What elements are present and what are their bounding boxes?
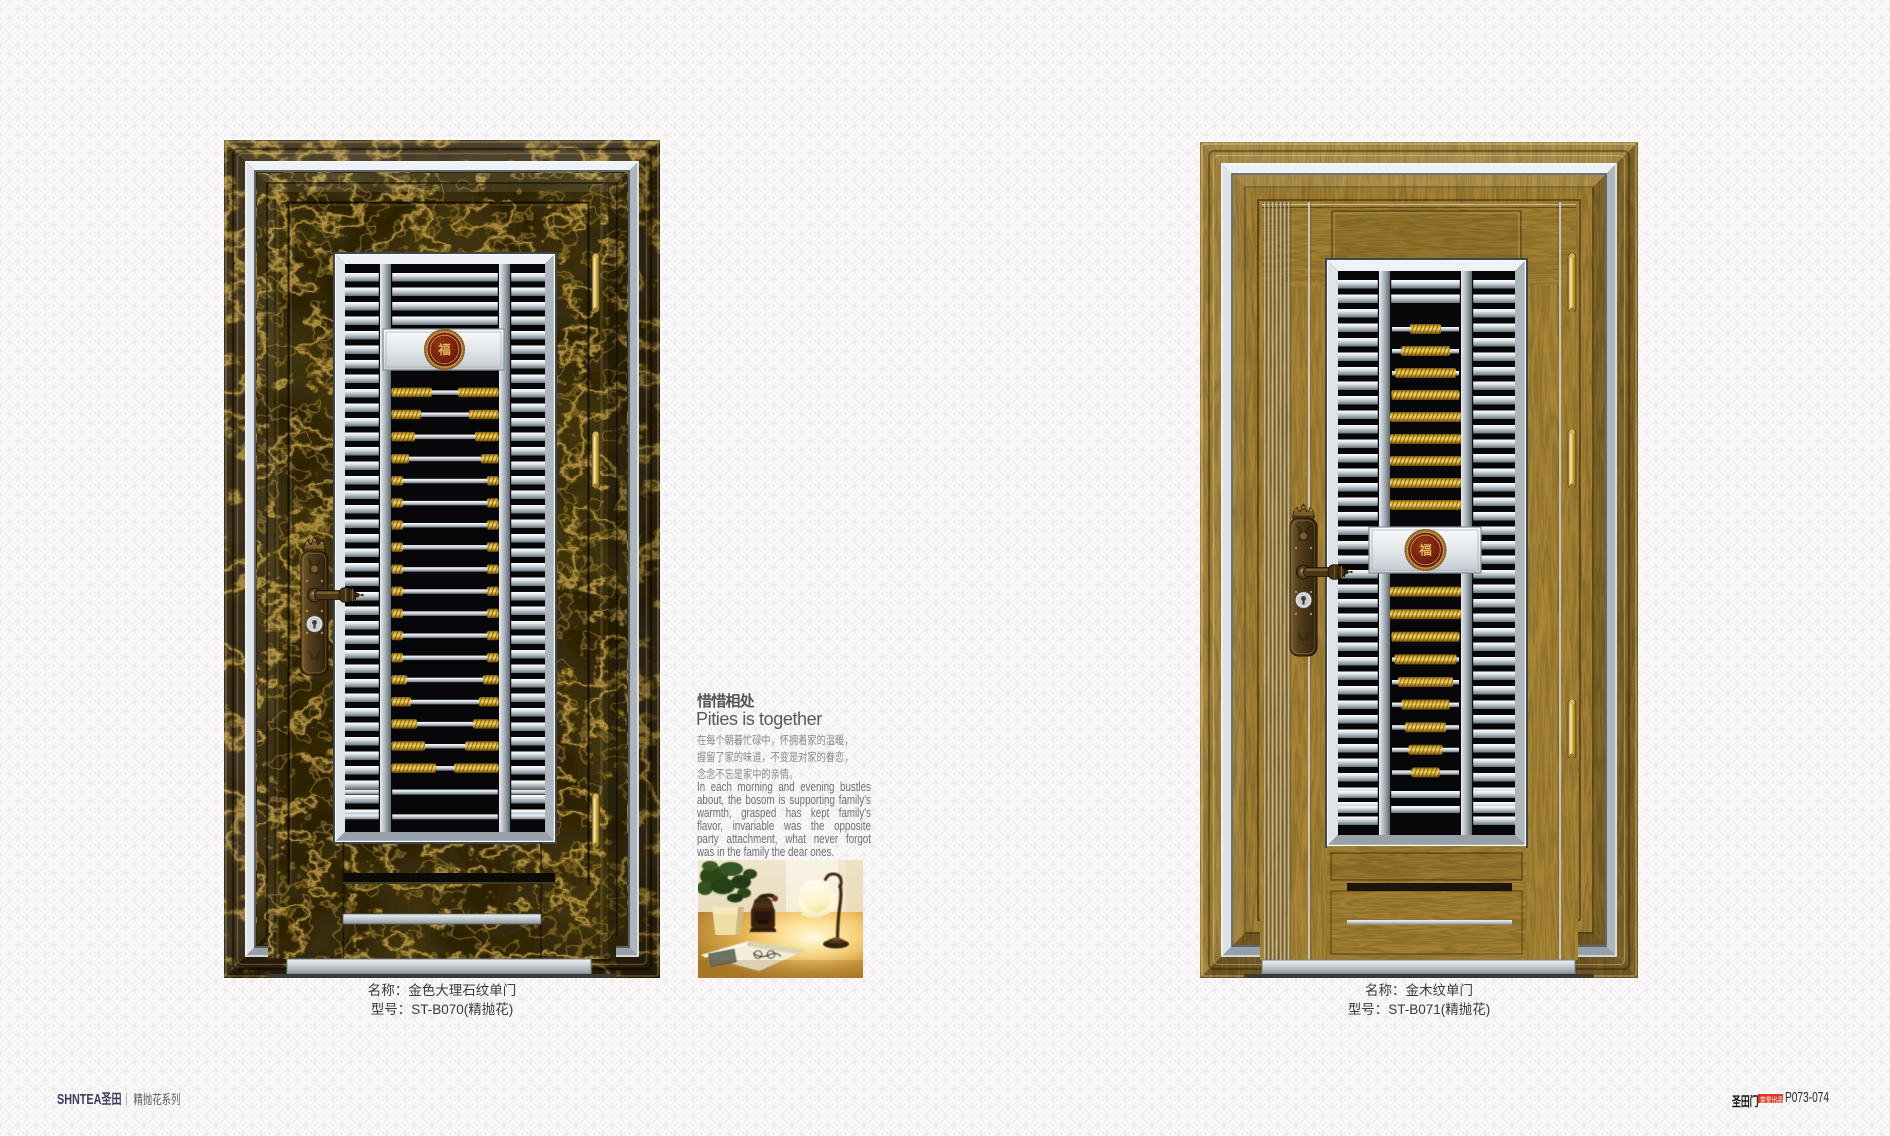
svg-text:福: 福 <box>437 342 451 357</box>
svg-text:福: 福 <box>1418 542 1432 557</box>
